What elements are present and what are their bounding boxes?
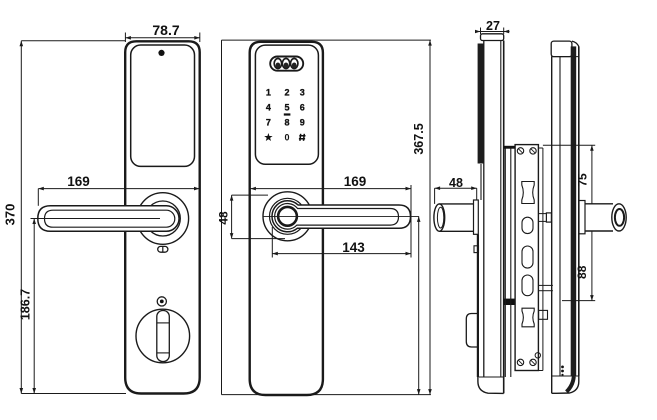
svg-text:48: 48: [449, 176, 463, 190]
svg-text:169: 169: [67, 174, 90, 189]
svg-text:88: 88: [575, 265, 589, 279]
svg-text:169: 169: [344, 174, 367, 189]
svg-text:27: 27: [486, 19, 500, 33]
svg-text:7: 7: [266, 117, 271, 127]
svg-text:367.5: 367.5: [412, 123, 426, 154]
svg-text:2: 2: [284, 87, 289, 97]
svg-text:186.7: 186.7: [19, 289, 33, 320]
svg-text:5: 5: [284, 102, 289, 112]
svg-text:9: 9: [300, 117, 305, 127]
svg-text:4: 4: [266, 102, 271, 112]
svg-text:3: 3: [300, 87, 305, 97]
svg-text:78.7: 78.7: [152, 22, 179, 38]
svg-text:370: 370: [3, 204, 18, 226]
svg-text:8: 8: [284, 117, 289, 127]
svg-text:48: 48: [216, 211, 230, 225]
svg-text:143: 143: [342, 240, 365, 255]
svg-text:6: 6: [300, 102, 305, 112]
svg-text:1: 1: [266, 87, 271, 97]
svg-text:0: 0: [284, 132, 289, 142]
svg-text:75: 75: [576, 173, 590, 187]
